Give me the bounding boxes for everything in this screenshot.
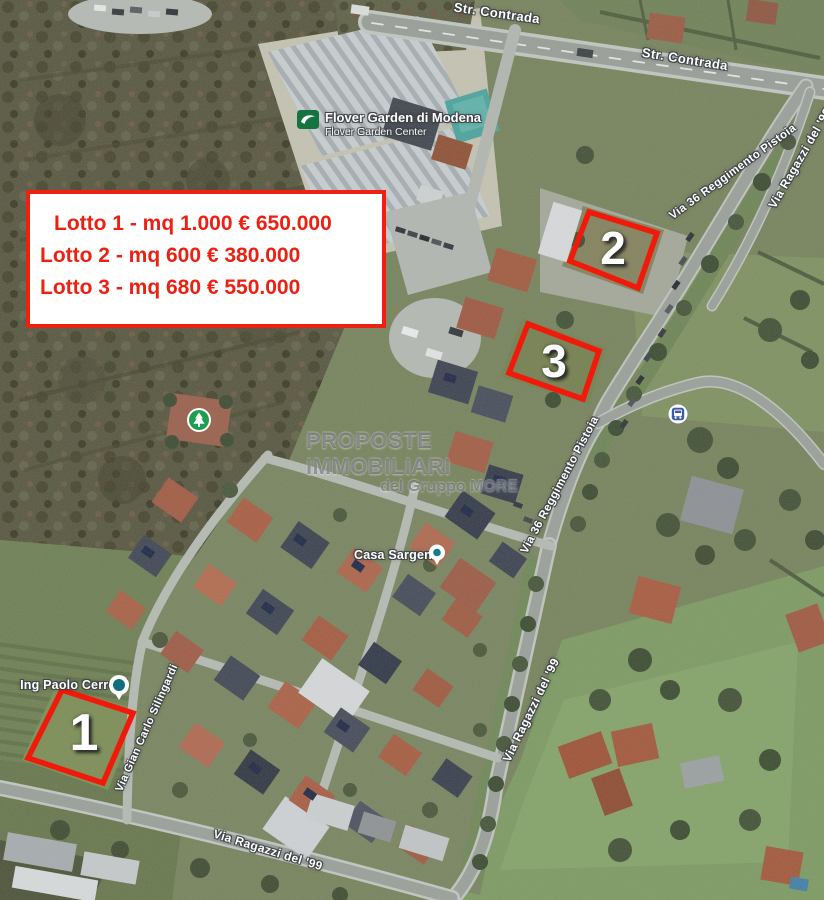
- lot-3-number: 3: [541, 334, 567, 388]
- lot-3-info-line: Lotto 3 - mq 680 € 550.000: [40, 272, 382, 304]
- lot-2-info-line: Lotto 2 - mq 600 € 380.000: [40, 240, 382, 272]
- casa-sargenti-pin[interactable]: [428, 544, 446, 573]
- bus-stop-marker[interactable]: [668, 404, 688, 429]
- flover-garden-subtitle: Flover Garden Center: [325, 126, 481, 138]
- flover-garden-icon: [297, 110, 319, 134]
- park-tree-icon: [186, 420, 212, 437]
- watermark-line1: PROPOSTE IMMOBILIARI: [306, 428, 518, 480]
- satellite-map[interactable]: 1 2 3 Str. Contrada Str. Contrada Via 36…: [0, 0, 824, 900]
- watermark-line2: del Gruppo MORE: [306, 478, 518, 496]
- map-pin-icon: [107, 689, 131, 706]
- map-pin-icon: [428, 555, 446, 572]
- lot-1-number: 1: [70, 703, 99, 763]
- poi-flover-garden[interactable]: Flover Garden di Modena Flover Garden Ce…: [297, 110, 481, 138]
- flover-garden-title: Flover Garden di Modena: [325, 110, 481, 125]
- lot-price-info-box: Lotto 1 - mq 1.000 € 650.000 Lotto 2 - m…: [26, 190, 386, 328]
- cerretti-pin[interactable]: [107, 674, 131, 707]
- bus-stop-icon: [668, 411, 688, 428]
- watermark: PROPOSTE IMMOBILIARI del Gruppo MORE: [306, 428, 518, 496]
- lot-2-number: 2: [600, 221, 626, 275]
- park-marker[interactable]: [186, 407, 212, 438]
- lot-1-info-line: Lotto 1 - mq 1.000 € 650.000: [40, 208, 382, 240]
